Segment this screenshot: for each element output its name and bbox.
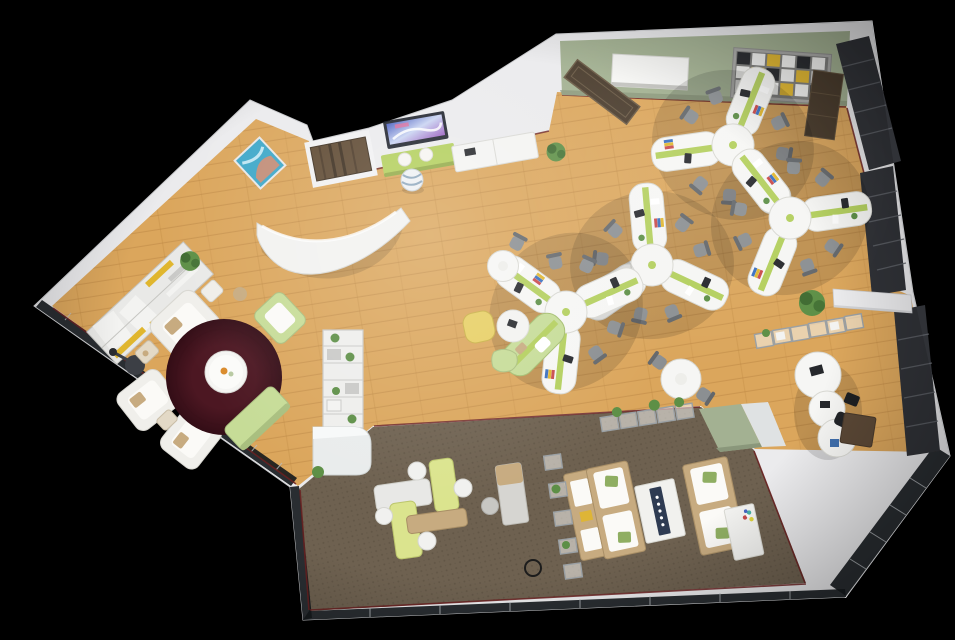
floor-plan-render <box>0 0 955 640</box>
floor-plan-canvas <box>0 0 955 640</box>
